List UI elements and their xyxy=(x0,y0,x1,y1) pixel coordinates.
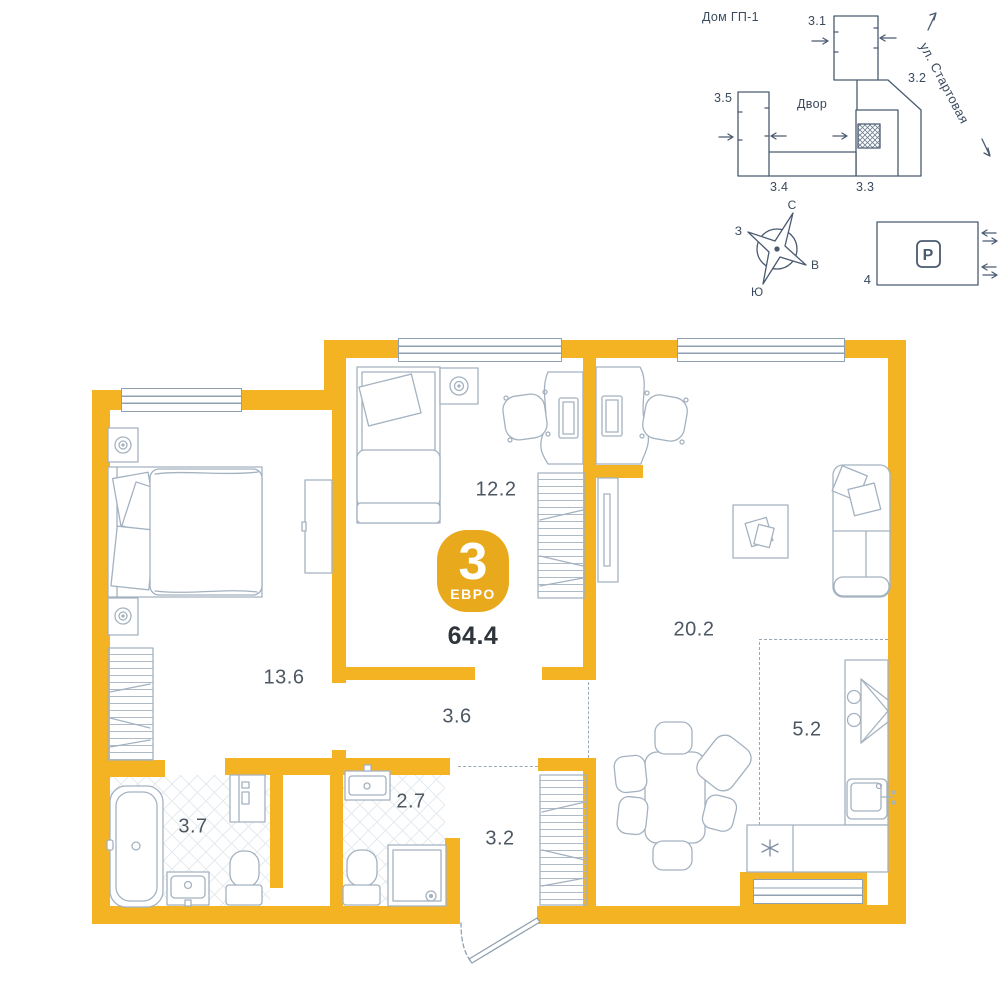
site-building-label-3-3: 3.3 xyxy=(856,180,874,194)
window-bedroom-second xyxy=(398,338,562,362)
floor-plan-page: С З В Ю P 4 13.6 12.2 20.2 3.6 3.2 3.7 2… xyxy=(0,0,1000,1000)
stove-hood xyxy=(848,679,889,743)
window-bedroom-main xyxy=(121,388,242,412)
wall-hall-living xyxy=(583,758,596,906)
compass-rose xyxy=(748,213,806,284)
wall-bedroom-bottom-1 xyxy=(108,760,165,777)
parking-lot xyxy=(877,222,978,285)
wardrobe-bedroom-second xyxy=(538,473,585,598)
chair-living-desk xyxy=(640,391,690,444)
site-building-label-3-2: 3.2 xyxy=(908,71,926,85)
wall-bottom-left-segment xyxy=(92,906,460,924)
wall-kitchen-bay-patch xyxy=(867,905,888,924)
bathroom-big-tiled-floor xyxy=(108,775,270,906)
site-building-3-1 xyxy=(834,16,878,80)
room-area-living: 20.2 xyxy=(674,619,715,642)
wall-hall-bathroom xyxy=(445,838,460,906)
wall-bedroom2-living xyxy=(583,340,596,680)
room-area-bathroom-big: 3.7 xyxy=(178,816,207,839)
nightstand-lamp-1 xyxy=(108,428,138,462)
sofa xyxy=(832,465,890,597)
parking-count: 4 xyxy=(864,272,871,287)
wardrobe-hall xyxy=(540,775,587,905)
kitchen-counter xyxy=(747,660,888,872)
zone-dash-kitchen-left xyxy=(759,642,760,825)
site-building-label-3-4: 3.4 xyxy=(770,180,788,194)
site-building-3-5 xyxy=(738,92,769,176)
chair-bedroom-second xyxy=(501,390,550,442)
wall-wardrobe-stub xyxy=(538,758,583,771)
coffee-table xyxy=(733,505,788,558)
parking-arrows xyxy=(982,230,997,278)
room-area-bedroom-second: 12.2 xyxy=(476,479,517,502)
entry-door xyxy=(461,918,540,963)
parking-symbol: P xyxy=(923,247,934,264)
zone-dash-corridor-hall xyxy=(458,766,538,767)
room-area-hall: 3.2 xyxy=(485,828,514,851)
single-bed xyxy=(357,367,440,523)
site-entrance-arrows xyxy=(719,35,896,140)
site-building-label-3-1: 3.1 xyxy=(808,14,826,28)
dining-chairs xyxy=(613,722,756,870)
parking-icon xyxy=(917,241,940,267)
room-area-bathroom-small: 2.7 xyxy=(396,791,425,814)
desk-living xyxy=(596,367,648,464)
room-area-bedroom-main: 13.6 xyxy=(264,667,305,690)
wall-bedrooms-divider xyxy=(332,410,346,683)
wall-desk-nook-stub xyxy=(596,465,643,478)
site-building-3-2 xyxy=(857,80,921,176)
desk-bedroom-second xyxy=(541,372,583,464)
site-building-3-3 xyxy=(856,110,898,176)
double-bed xyxy=(108,467,262,597)
dining-table xyxy=(645,752,705,843)
site-building-label-3-5: 3.5 xyxy=(714,91,732,105)
wall-right xyxy=(888,340,906,924)
site-house-label: Дом ГП-1 xyxy=(702,10,759,24)
window-living xyxy=(677,338,845,362)
wall-corridor-1 xyxy=(332,667,475,680)
window-kitchen xyxy=(753,879,863,904)
compass-east-label: В xyxy=(811,258,819,272)
site-building-3-4 xyxy=(768,152,856,176)
nightstand-lamp-2 xyxy=(108,598,138,635)
wardrobe-bedroom-main xyxy=(108,648,153,760)
compass-south-label: Ю xyxy=(751,285,763,299)
tv-console xyxy=(598,478,618,582)
dresser xyxy=(302,480,332,573)
rooms-count: 3 xyxy=(459,540,488,584)
nightstand-lamp-3 xyxy=(440,368,478,404)
wall-bedroom-bottom-2 xyxy=(225,758,450,775)
total-area-value: 64.4 xyxy=(437,622,509,651)
fridge-snowflake-icon xyxy=(762,840,778,856)
wall-left xyxy=(92,390,110,924)
wall-niche-right xyxy=(330,775,343,906)
apartment-type-label: ЕВРО xyxy=(450,586,496,602)
room-area-corridor: 3.6 xyxy=(442,706,471,729)
zone-dash-kitchen-top xyxy=(759,639,888,640)
room-area-kitchen-zone: 5.2 xyxy=(792,719,821,742)
bathroom-small-tiled-floor xyxy=(343,775,445,906)
zone-dash-corridor-living xyxy=(588,682,589,758)
wall-niche-left xyxy=(270,775,283,888)
site-courtyard-label: Двор xyxy=(797,97,827,111)
site-apartment-location-marker xyxy=(858,124,880,148)
apartment-type-badge: 3 ЕВРО xyxy=(437,530,509,612)
compass-west-label: З xyxy=(735,224,742,238)
compass-north-label: С xyxy=(788,198,797,212)
